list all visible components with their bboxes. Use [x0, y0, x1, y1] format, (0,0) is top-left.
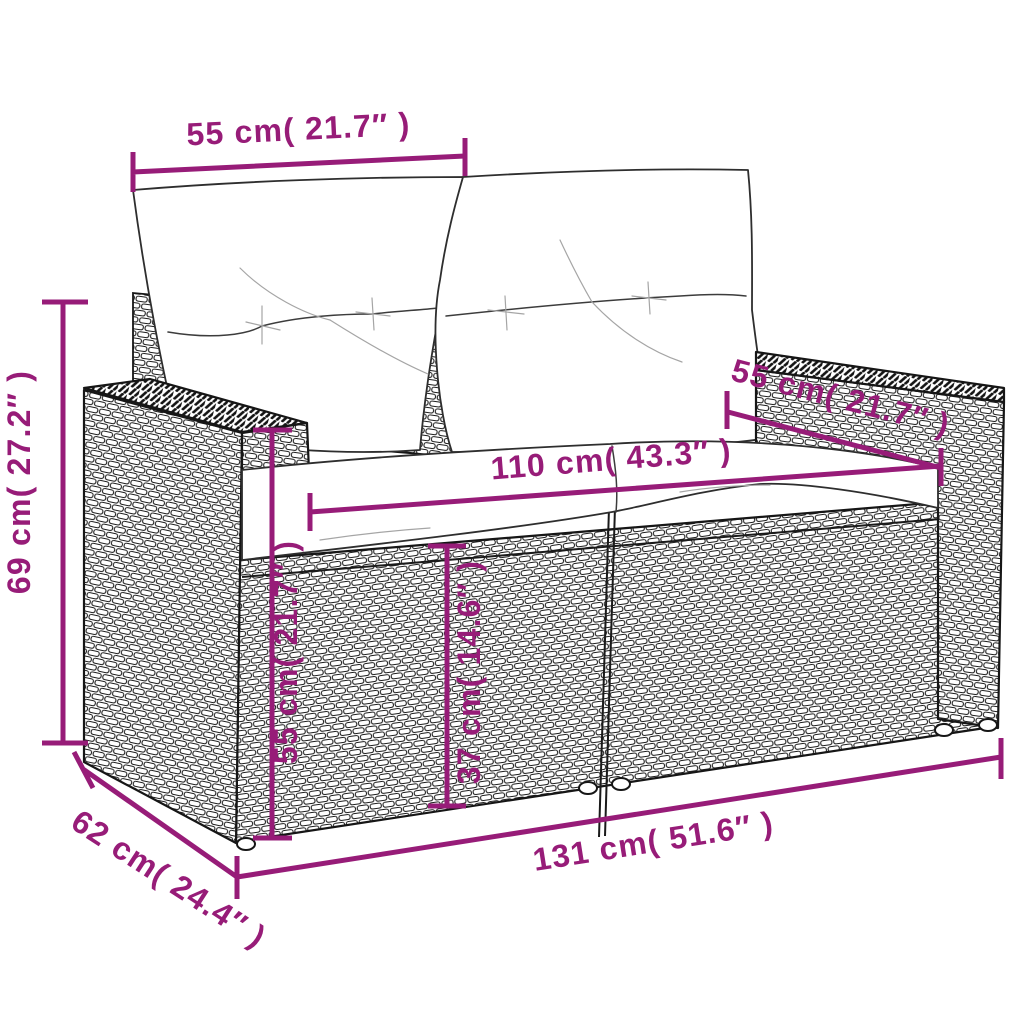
sofa-base: [236, 498, 990, 850]
dim-backrest-height-label: 55 cm( 21.7″ ): [268, 540, 304, 764]
sofa-dimension-drawing: 55 cm( 21.7″ ) 69 cm( 27.2″ ) 55 cm( 21.…: [0, 0, 1024, 1024]
product-dimension-diagram: 55 cm( 21.7″ ) 69 cm( 27.2″ ) 55 cm( 21.…: [0, 0, 1024, 1024]
dim-back-cushion-width-label: 55 cm( 21.7″ ): [186, 106, 412, 153]
right-back-cushion: [436, 169, 770, 452]
dim-seat-height-label: 37 cm( 14.6″ ): [451, 560, 487, 784]
dim-overall-height-label: 69 cm( 27.2″ ): [1, 370, 37, 594]
dim-overall-width-label: 131 cm( 51.6″ ): [530, 804, 776, 878]
dim-overall-height: 69 cm( 27.2″ ): [1, 302, 88, 743]
